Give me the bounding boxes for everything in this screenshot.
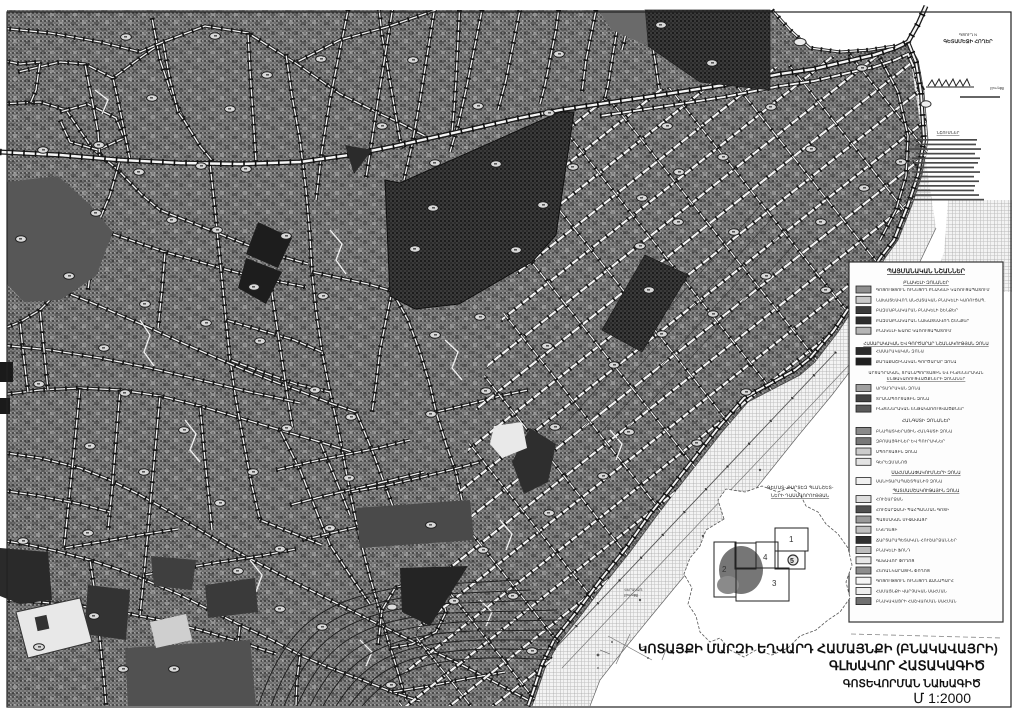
svg-text:ԿՈՏԱՅՔԻ ՄԱՐԶԻ ԵՂՎԱՐԴ ՀԱՄԱՅՆՔԻ: ԿՈՏԱՅՔԻ ՄԱՐԶԻ ԵՂՎԱՐԴ ՀԱՄԱՅՆՔԻ (ԲՆԱԿԱՎԱՅՐ… xyxy=(638,642,998,656)
svg-text:ԲՆԱԿԵԼԻ ԽԱՌԸ ԿԱՌՈՒՑԱՊԱՏՈՒՄ: ԲՆԱԿԵԼԻ ԽԱՌԸ ԿԱՌՈՒՑԱՊԱՏՈՒՄ xyxy=(876,328,952,333)
svg-text:2: 2 xyxy=(722,565,727,574)
svg-text:ԵԿԵՂԵՑԻ: ԵԿԵՂԵՑԻ xyxy=(876,527,898,532)
svg-text:ՀԱՍԱՐԱԿԱԿԱՆ ԶՈՆԱ: ՀԱՍԱՐԱԿԱԿԱՆ ԶՈՆԱ xyxy=(876,349,924,354)
svg-text:ԱՐՏԱԴՐԱԿԱՆ, ՏՐԱՆՍՊՈՐՏԱՅԻՆ ԵՎ Ի: ԱՐՏԱԴՐԱԿԱՆ, ՏՐԱՆՍՊՈՐՏԱՅԻՆ ԵՎ ԻՆԺԵՆԵՐԱԿԱՆ xyxy=(868,370,983,375)
svg-text:ԳԼԽԱՎՈՐ ՀԱՏԱԿԱԳԻԾ: ԳԼԽԱՎՈՐ ՀԱՏԱԿԱԳԻԾ xyxy=(829,658,985,673)
svg-text:ՀԱՆԳՍՏԻ ԶՈՆԱՆԵՐ: ՀԱՆԳՍՏԻ ԶՈՆԱՆԵՐ xyxy=(902,418,951,423)
svg-text:ՊԱՅՄԱՆԱԿԱՆ ՆՇԱՆՆԵՐ: ՊԱՅՄԱՆԱԿԱՆ ՆՇԱՆՆԵՐ xyxy=(887,268,965,275)
svg-text:ԱՐՏԱԴՐԱԿԱՆ ԶՈՆԱ: ԱՐՏԱԴՐԱԿԱՆ ԶՈՆԱ xyxy=(876,386,921,391)
svg-text:ջրանցք: ջրանցք xyxy=(990,85,1005,90)
svg-text:ՏՐԱՆՍՊՈՐՏԱՅԻՆ ԶՈՆԱ: ՏՐԱՆՍՊՈՐՏԱՅԻՆ ԶՈՆԱ xyxy=(876,396,929,401)
svg-text:ՊԱՏՄԱՄՇԱԿՈՒԹԱՅԻՆ ԶՈՆԱ: ՊԱՏՄԱՄՇԱԿՈՒԹԱՅԻՆ ԶՈՆԱ xyxy=(893,488,960,493)
svg-text:ԲԱԶՄԱԲՆԱԿԱՐԱՆ ՆԱԽԱՏԵՍՎՈՂ ՇԵՆՔԵ: ԲԱԶՄԱԲՆԱԿԱՐԱՆ ՆԱԽԱՏԵՍՎՈՂ ՇԵՆՔԵՐ xyxy=(876,318,969,323)
svg-text:ԳԵՏԱՄԵՋԻ ՀՈՂԵՐ: ԳԵՏԱՄԵՋԻ ՀՈՂԵՐ xyxy=(943,39,993,45)
svg-text:ՀԵՌԱՆԿԱՐԱՅԻՆ ՓՈՂՈՑ: ՀԵՌԱՆԿԱՐԱՅԻՆ ՓՈՂՈՑ xyxy=(876,568,930,573)
svg-text:ՀՈՒՇԱՐՁԱՆ: ՀՈՒՇԱՐՁԱՆ xyxy=(876,497,903,502)
svg-text:ՆՇՈՒՄՆԵՐ: ՆՇՈՒՄՆԵՐ xyxy=(937,130,960,135)
svg-text:ԲՆԱՊԱՏԿԵՐԱՅԻՆ ՀԱՆԳՍՏԻ ԶՈՆԱ: ԲՆԱՊԱՏԿԵՐԱՅԻՆ ՀԱՆԳՍՏԻ ԶՈՆԱ xyxy=(876,428,952,433)
svg-text:ՀԱՍԱՐԱԿԱԿԱՆ ԵՎ ԳՈՐԾԱՐԱՐ ՆՇԱՆԱԿ: ՀԱՍԱՐԱԿԱԿԱՆ ԵՎ ԳՈՐԾԱՐԱՐ ՆՇԱՆԱԿՈՒԹՅԱՆ ԶՈՆ… xyxy=(863,341,988,346)
svg-text:ԳՈՏԵՎՈՐՄԱՆ ՆԱԽԱԳԻԾ: ԳՈՏԵՎՈՐՄԱՆ ՆԱԽԱԳԻԾ xyxy=(843,678,981,690)
svg-text:ՔԱՂԱՔԱՇԻՆԱԿԱՆ ԳՈՐԾԱՐԱՐ ԶՈՆԱ: ՔԱՂԱՔԱՇԻՆԱԿԱՆ ԳՈՐԾԱՐԱՐ ԶՈՆԱ xyxy=(876,359,957,364)
svg-text:Մ 1:2000: Մ 1:2000 xyxy=(913,690,971,706)
svg-text:ԲՆԱԿԱՎԱՅՐԻ ՀԱՇՎԱՌՄԱՆ ՍԱՀՄԱՆ: ԲՆԱԿԱՎԱՅՐԻ ՀԱՇՎԱՌՄԱՆ ՍԱՀՄԱՆ xyxy=(876,599,957,604)
svg-text:ՀԱՄԱՅՆՔԻ ՎԱՐՉԱԿԱՆ ՍԱՀՄԱՆ: ՀԱՄԱՅՆՔԻ ՎԱՐՉԱԿԱՆ ՍԱՀՄԱՆ xyxy=(876,588,947,593)
svg-text:ՃԱՐՏԱՐԱՊԵՏԱԿԱՆ ՀՈՒՇԱՐՁԱՆՆԵՐ: ՃԱՐՏԱՐԱՊԵՏԱԿԱՆ ՀՈՒՇԱՐՁԱՆՆԵՐ xyxy=(876,537,957,542)
svg-text:ԲՆԱԿԵԼԻ ՖՈՆԴ: ԲՆԱԿԵԼԻ ՖՈՆԴ xyxy=(876,548,910,553)
svg-text:3: 3 xyxy=(772,579,777,588)
svg-text:ՎԵՐԱԿԱՌ.: ՎԵՐԱԿԱՌ. xyxy=(624,588,644,592)
svg-text:ՍԱՆԻՏԱՐԱՊԱՇՏՊԱՆԻՉ ԶՈՆԱ: ՍԱՆԻՏԱՐԱՊԱՇՏՊԱՆԻՉ ԶՈՆԱ xyxy=(876,479,942,484)
svg-text:ԲԱԶՄԱԲՆԱԿԱՐԱՆ ԲՆԱԿԵԼԻ ՇԵՆՔԵՐ: ԲԱԶՄԱԲՆԱԿԱՐԱՆ ԲՆԱԿԵԼԻ ՇԵՆՔԵՐ xyxy=(876,308,958,313)
svg-text:ՆԱԽԱՏԵՍՎՈՂ ԱՆՀԱՏԱԿԱՆ ԲՆԱԿԵԼԻ Կ: ՆԱԽԱՏԵՍՎՈՂ ԱՆՀԱՏԱԿԱՆ ԲՆԱԿԵԼԻ ԿԱՌՈՒՑԱՊ. xyxy=(876,297,986,302)
svg-text:1: 1 xyxy=(789,535,794,544)
svg-text:ՍՊՈՐՏԱՅԻՆ ԶՈՆԱ: ՍՊՈՐՏԱՅԻՆ ԶՈՆԱ xyxy=(876,449,917,454)
svg-text:ՆԵՐԻ ԴԱՍԱՎՈՐՈՒԹՅԱՆ: ՆԵՐԻ ԴԱՍԱՎՈՐՈՒԹՅԱՆ xyxy=(771,493,830,498)
svg-text:ԵՆԹԱԿԱՌՈՒՑՎԱԾՔՆԵՐԻ ԶՈՆԱՆԵՐ: ԵՆԹԱԿԱՌՈՒՑՎԱԾՔՆԵՐԻ ԶՈՆԱՆԵՐ xyxy=(887,376,966,381)
svg-text:ՀՈՒՇԱՐՁԱՆԻ ՊԱՀՊԱՆՄԱՆ ԳՈՏԻ: ՀՈՒՇԱՐՁԱՆԻ ՊԱՀՊԱՆՄԱՆ ԳՈՏԻ xyxy=(876,507,949,512)
svg-text:ԳՈՅՈՒԹՅՈՒՆ ՈՒՆԵՑՈՂ ԲՆԱԿԵԼԻ ԿԱՌ: ԳՈՅՈՒԹՅՈՒՆ ՈՒՆԵՑՈՂ ԲՆԱԿԵԼԻ ԿԱՌՈՒՑԱՊԱՏՈՒՄ xyxy=(876,287,990,292)
svg-text:ՊԱՏՄԱԿԱՆ ՄԻՋԱՎԱՅՐ: ՊԱՏՄԱԿԱՆ ՄԻՋԱՎԱՅՐ xyxy=(876,517,928,522)
svg-text:ԳԼԽԱՎՈՐ ՓՈՂՈՑ: ԳԼԽԱՎՈՐ ՓՈՂՈՑ xyxy=(876,558,915,563)
svg-text:ԳԵՐԵԶՄԱՆՈՑ: ԳԵՐԵԶՄԱՆՈՑ xyxy=(876,459,907,464)
svg-text:ԳՈՅՈՒԹՅՈՒՆ ՈՒՆԵՑՈՂ ՃԱՆԱՊԱՐՀ: ԳՈՅՈՒԹՅՈՒՆ ՈՒՆԵՑՈՂ ՃԱՆԱՊԱՐՀ xyxy=(876,578,954,583)
svg-text:ԻՆԺԵՆԵՐԱԿԱՆ ԵՆԹԱԿԱՌՈՒՑՎԱԾՔՆԵՐ: ԻՆԺԵՆԵՐԱԿԱՆ ԵՆԹԱԿԱՌՈՒՑՎԱԾՔՆԵՐ xyxy=(876,406,964,411)
svg-text:ԲՆԱԿԵԼԻ ԶՈՆԱՆԵՐ: ԲՆԱԿԵԼԻ ԶՈՆԱՆԵՐ xyxy=(903,280,948,285)
svg-text:ԹԵՄԱՏ- ՔԱՐՏԵԶ ՊԼԱՆՇԵՏ-: ԹԵՄԱՏ- ՔԱՐՏԵԶ ՊԼԱՆՇԵՏ- xyxy=(767,485,834,490)
svg-text:ԳՅՈՒՂ N: ԳՅՈՒՂ N xyxy=(959,32,977,37)
svg-text:ԶԲՈՍԱՅԳԻՆԵՐ ԵՎ ՊՈՒՐԱԿՆԵՐ: ԶԲՈՍԱՅԳԻՆԵՐ ԵՎ ՊՈՒՐԱԿՆԵՐ xyxy=(876,439,945,444)
svg-text:4: 4 xyxy=(763,553,768,562)
svg-text:ՍԱՀՄԱՆԱՓԱԿՈՒՄՆԵՐԻ ԶՈՆԱ: ՍԱՀՄԱՆԱՓԱԿՈՒՄՆԵՐԻ ԶՈՆԱ xyxy=(891,470,960,475)
svg-text:ջրանցք: ջրանցք xyxy=(624,592,639,597)
svg-text:5: 5 xyxy=(790,558,794,565)
